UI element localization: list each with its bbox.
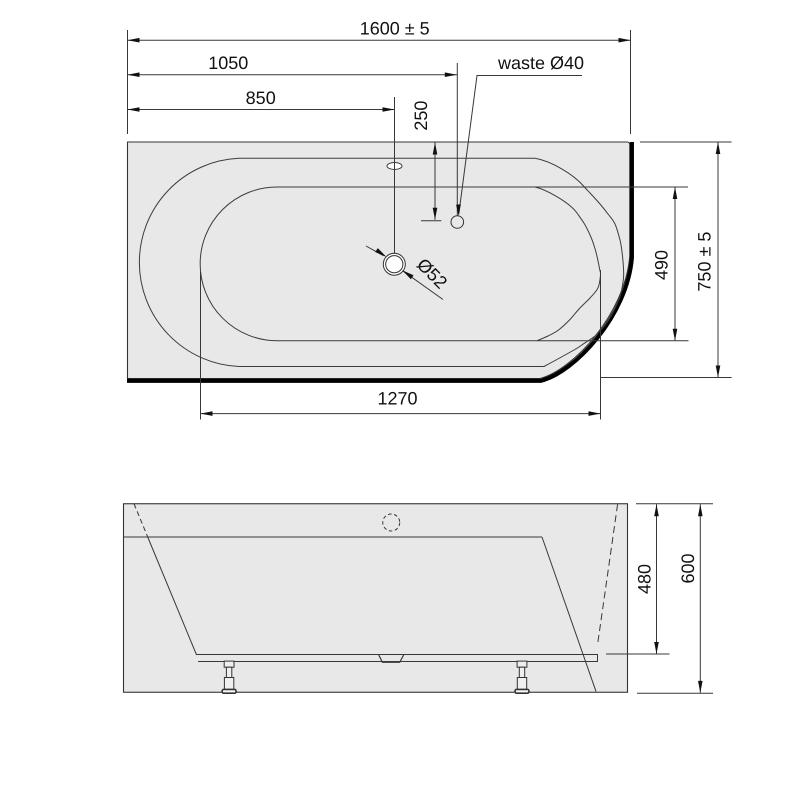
svg-text:850: 850 [246, 88, 276, 108]
svg-text:1600 ± 5: 1600 ± 5 [360, 19, 430, 39]
svg-text:750 ± 5: 750 ± 5 [695, 232, 715, 292]
svg-text:490: 490 [652, 250, 672, 280]
svg-text:1270: 1270 [377, 389, 417, 409]
svg-text:250: 250 [411, 101, 431, 131]
svg-text:600: 600 [678, 553, 698, 583]
svg-text:waste Ø40: waste Ø40 [497, 53, 584, 73]
svg-text:1050: 1050 [208, 53, 248, 73]
svg-text:480: 480 [635, 564, 655, 594]
